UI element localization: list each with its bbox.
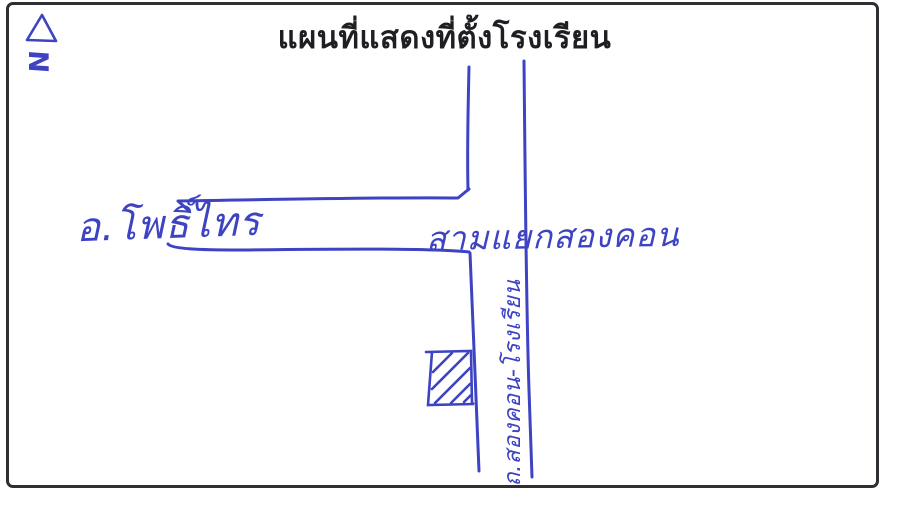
school-building-marker (426, 351, 474, 405)
label-intersection: สามแยกสองคอน (426, 208, 680, 265)
label-district-road: อ.โพธิ์ไทร (75, 189, 262, 259)
label-school-road: ถ.สองคอน-โรงเรียน (495, 275, 531, 491)
road-vertical-upper-left-line (468, 67, 469, 190)
